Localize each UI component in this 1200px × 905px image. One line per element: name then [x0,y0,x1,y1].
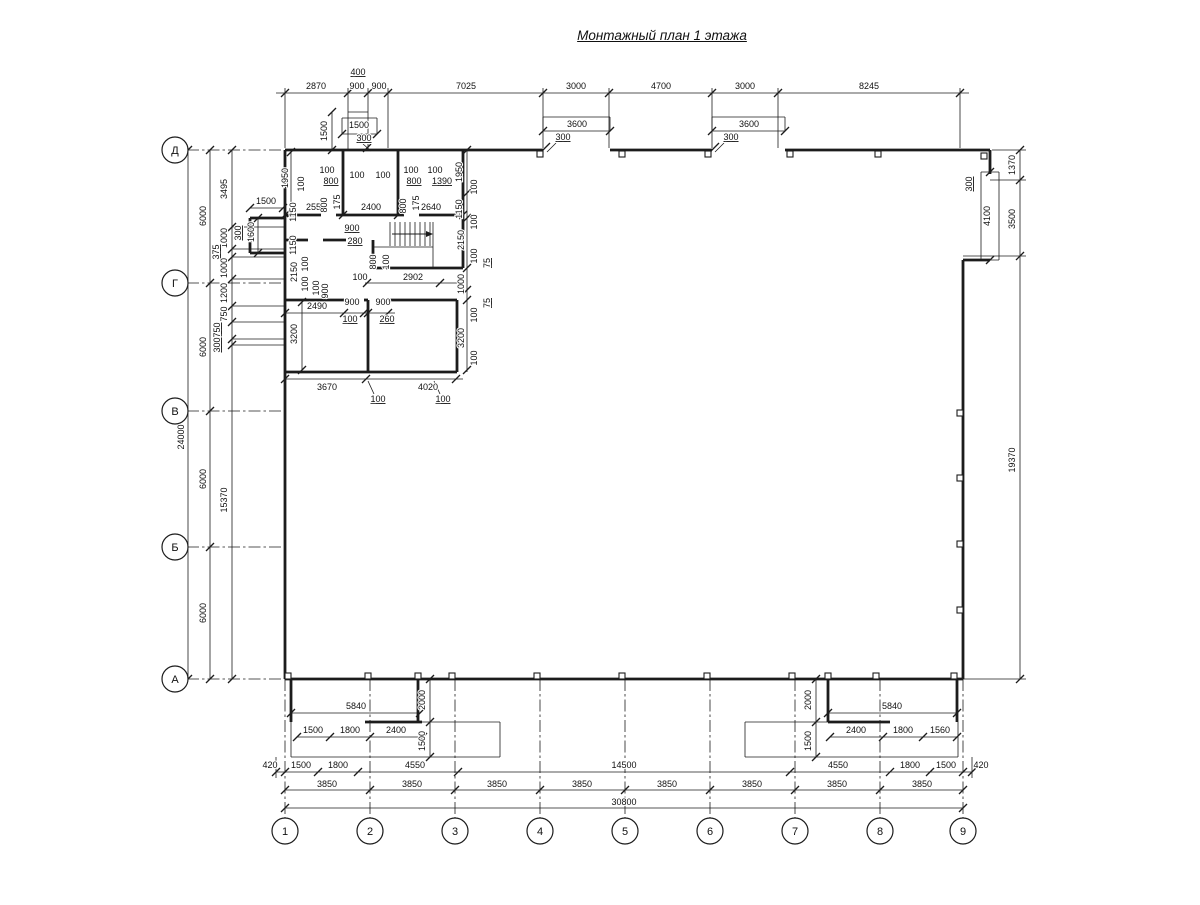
dimension-label: 800 [398,198,408,213]
dimension-label: 6000 [198,337,208,357]
dimension-label: 7025 [456,81,476,91]
dimension-label: 900 [371,81,386,91]
dimension-label: 1500 [303,725,323,735]
dimension-label: 8245 [859,81,879,91]
dimension-label: 75 [482,258,492,268]
dimension-label: 1500 [803,731,813,751]
dimension-label: 2150 [456,230,466,250]
dimension-label: 3600 [567,119,587,129]
column-plate [704,673,710,679]
dimension-label: 4550 [405,760,425,770]
axis-label: 7 [792,826,798,838]
dimension-label: 1150 [288,235,298,254]
dimension-label: 3850 [912,779,932,789]
dimension-label: 1800 [900,760,920,770]
axis-label: 2 [367,826,373,838]
dimension-label: 100 [370,394,385,404]
dimension-label: 1500 [319,121,329,141]
dimension-label: 3850 [742,779,762,789]
axis-label: 9 [960,826,966,838]
dimension-label: 900 [344,297,359,307]
column-plate [619,151,625,157]
dimension-label: 800 [406,176,421,186]
dimension-label: 100 [381,254,391,269]
dimension-label: 6000 [198,603,208,623]
dimension-label: 750 [219,306,229,321]
dimension-label: 4700 [651,81,671,91]
column-plate [957,475,963,481]
dimension-label: 100 [375,170,390,180]
column-plate [619,673,625,679]
dimension-label: 375 [211,244,221,259]
column-plate [787,151,793,157]
dimension-label: 100 [296,176,306,191]
column-plate [873,673,879,679]
dimension-label: 1950 [280,168,290,188]
dimension-label: 1390 [432,176,452,186]
dimension-label: 100 [300,276,310,291]
dimension-label: 6000 [198,206,208,226]
dimension-label: 1500 [417,731,427,751]
dimension-label: 2400 [361,202,381,212]
dimension-label: 75 [482,298,492,308]
dimension-label: 1500 [349,120,369,130]
dimension-label: 100 [427,165,442,175]
dimension-label: 5840 [882,701,902,711]
dimension-label: 3850 [827,779,847,789]
dimension-label: 3850 [487,779,507,789]
dimension-label: 1150 [454,199,464,218]
dimension-label: 3000 [566,81,586,91]
dimension-label: 1150 [288,202,298,221]
dimension-label: 3850 [572,779,592,789]
dimension-label: 3850 [657,779,677,789]
dimension-label: 1000 [219,258,229,278]
dimension-label: 175 [411,195,421,210]
column-plate [951,673,957,679]
dimension-label: 260 [379,314,394,324]
dimension-label: 280 [347,236,362,246]
dimension-label: 420 [262,760,277,770]
axis-label: В [171,406,178,418]
dimension-label: 1800 [328,760,348,770]
dimension-label: 5840 [346,701,366,711]
dimension-label: 1500 [256,196,276,206]
dimension-label: 750 [212,322,222,337]
dimension-label: 6000 [198,469,208,489]
axis-label: 4 [537,826,543,838]
column-plate [534,673,540,679]
dimension-label: 1800 [893,725,913,735]
dimension-label: 4100 [982,206,992,226]
dimension-label: 100 [319,165,334,175]
dimension-label: 100 [469,214,479,229]
dimension-label: 1370 [1007,155,1017,175]
dimension-label: 3850 [317,779,337,789]
column-plate [981,153,987,159]
dimension-label: 3000 [735,81,755,91]
dimension-label: 175 [332,194,342,209]
dimension-line [715,143,724,152]
dimension-label: 3200 [456,328,466,348]
dimension-label: 1600 [246,222,256,242]
dimension-label: 2902 [403,272,423,282]
dimension-label: 1560 [930,725,950,735]
dimension-label: 3600 [739,119,759,129]
axis-label: 8 [877,826,883,838]
column-plate [957,607,963,613]
column-plate [415,673,421,679]
column-plate [957,541,963,547]
dimension-label: 2400 [386,725,406,735]
axis-label: А [171,674,179,686]
column-plate [537,151,543,157]
column-plate [875,151,881,157]
axis-label: Д [171,145,179,157]
dimension-label: 3200 [289,324,299,344]
dimension-label: 100 [435,394,450,404]
dimension-label: 3500 [1007,209,1017,229]
dimension-label: 100 [469,350,479,365]
dimension-label: 3495 [219,179,229,199]
column-plate [957,410,963,416]
dimension-label: 15370 [219,487,229,512]
dimension-label: 1200 [219,283,229,303]
dimension-label: 30800 [611,797,636,807]
dimension-label: 800 [368,254,378,269]
dimension-label: 900 [349,81,364,91]
floor-plan-svg: 2870400900900702530004700300082451500150… [0,0,1200,900]
dimension-label: 300 [723,132,738,142]
axis-label: 1 [282,826,288,838]
dimension-label: 100 [469,179,479,194]
dimension-label: 300 [356,133,371,143]
dimension-label: 1950 [454,162,464,182]
dimension-label: 900 [375,297,390,307]
floor-plan-canvas: Монтажный план 1 этажа 28704009009007025… [0,0,1200,900]
dimension-label: 800 [323,176,338,186]
column-plate [705,151,711,157]
dimension-label: 400 [350,67,365,77]
dimension-label: 1500 [936,760,956,770]
dimension-label: 1800 [340,725,360,735]
axis-label: 3 [452,826,458,838]
dimension-label: 100 [469,248,479,263]
dimension-label: 19370 [1007,447,1017,472]
dimension-label: 2870 [306,81,326,91]
dimension-label: 100 [349,170,364,180]
dimension-label: 2150 [289,262,299,282]
dimension-label: 2490 [307,301,327,311]
dimension-label: 300 [555,132,570,142]
dimension-label: 3670 [317,382,337,392]
column-plate [449,673,455,679]
dimension-label: 300 [212,337,222,352]
dimension-label: 4020 [418,382,438,392]
dimension-label: 100 [469,307,479,322]
dimension-label: 300 [233,225,243,240]
dimension-label: 3850 [402,779,422,789]
dimension-label: 4550 [828,760,848,770]
column-plate [789,673,795,679]
dimension-label: 900 [344,223,359,233]
dimension-label: 900 [320,283,330,298]
dimension-label: 1500 [291,760,311,770]
stair-arrow-head [426,231,433,237]
dimension-label: 800 [319,197,329,212]
axis-label: 6 [707,826,713,838]
dimension-label: 100 [403,165,418,175]
dimension-label: 100 [342,314,357,324]
dimension-label: 1000 [456,274,466,294]
dimension-label: 100 [352,272,367,282]
axis-label: Б [171,542,178,554]
dimension-label: 14500 [611,760,636,770]
dimension-label: 2640 [421,202,441,212]
dimension-label: 2000 [803,690,813,710]
column-plate [285,673,291,679]
axis-label: 5 [622,826,628,838]
column-plate [825,673,831,679]
dimension-label: 100 [300,256,310,271]
dimension-line [368,381,374,394]
dimension-label: 2000 [417,690,427,710]
dimension-label: 24000 [176,424,186,449]
dimension-label: 420 [973,760,988,770]
column-plate [365,673,371,679]
dimension-label: 2400 [846,725,866,735]
axis-label: Г [172,278,178,290]
dimension-label: 300 [964,176,974,191]
drawing-title: Монтажный план 1 этажа [512,28,812,43]
